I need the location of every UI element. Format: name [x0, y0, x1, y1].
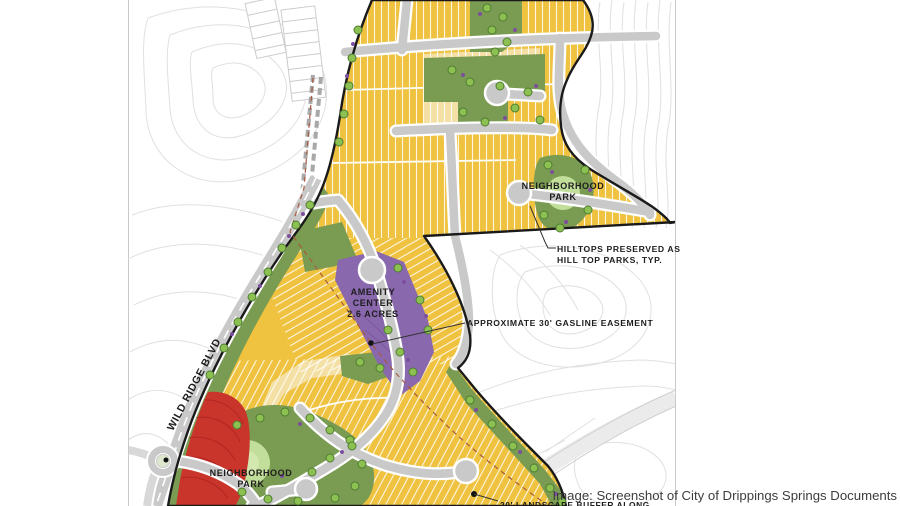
- neighborhood-park-upper-label: NEIGHBORHOOD: [522, 181, 605, 191]
- image-caption: Image: Screenshot of City of Drippings S…: [553, 488, 898, 503]
- neighborhood-park-lower-label2: PARK: [237, 479, 264, 489]
- neighborhood-park-lower-label: NEIGHBORHOOD: [210, 468, 293, 478]
- gasline-easement-label: APPROXIMATE 30' GASLINE EASEMENT: [467, 318, 653, 328]
- neighborhood-park-upper-label2: PARK: [549, 192, 576, 202]
- hilltops-note-line1: HILLTOPS PRESERVED AS: [557, 244, 681, 254]
- site-plan-screenshot: NEIGHBORHOOD PARK HILLTOPS PRESERVED AS …: [0, 0, 900, 506]
- hilltops-note-line2: HILL TOP PARKS, TYP.: [557, 255, 662, 265]
- amenity-label-line1: AMENITY: [351, 287, 396, 297]
- gasline-marker-dot: [368, 340, 374, 346]
- amenity-label-line2: CENTER: [353, 298, 394, 308]
- amenity-label-line3: 2.6 ACRES: [347, 309, 399, 319]
- site-plan-map: NEIGHBORHOOD PARK HILLTOPS PRESERVED AS …: [0, 0, 900, 506]
- gasline-marker-dot: [164, 458, 169, 463]
